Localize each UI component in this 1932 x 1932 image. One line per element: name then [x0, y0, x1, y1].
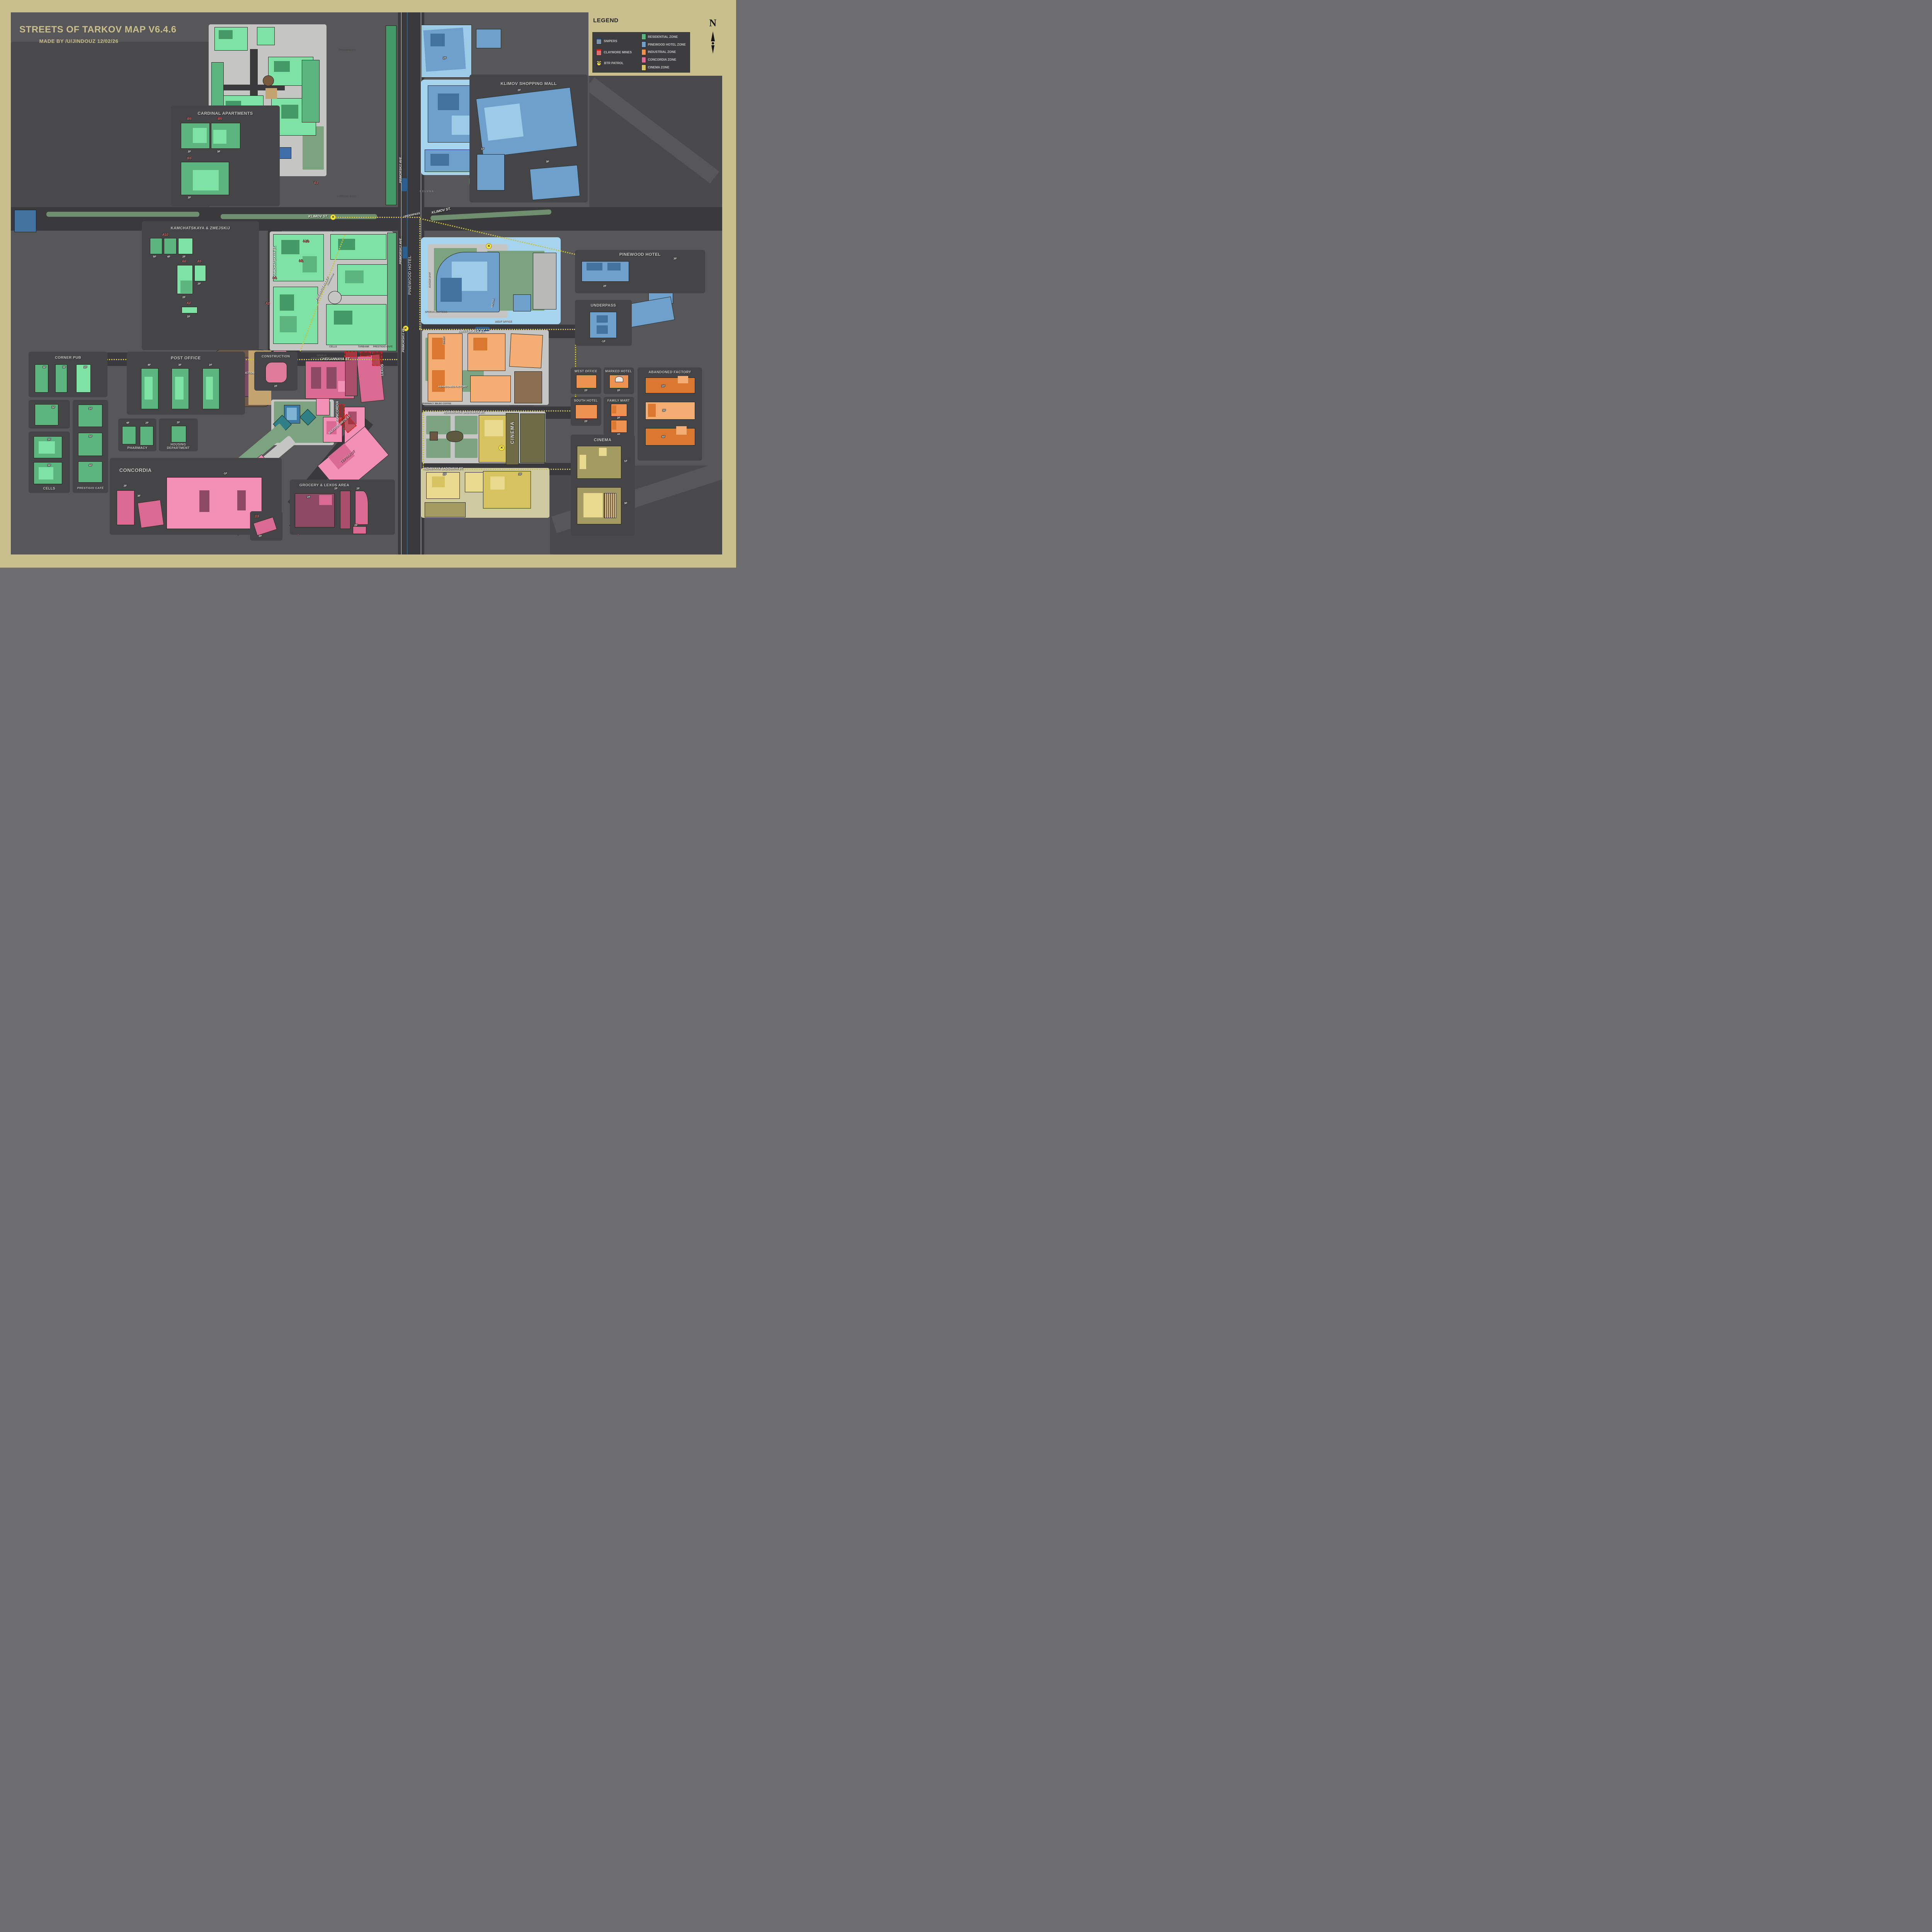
street-label-primorskij49: PRIMORSKIJ 49	[402, 328, 405, 352]
floorplan-detail	[145, 377, 153, 400]
floor-label: 2F	[182, 296, 186, 299]
cinema-zone-swatch	[641, 65, 646, 71]
floorplan-detail	[607, 263, 621, 270]
road-klimov	[11, 207, 722, 231]
code-label: A6	[182, 259, 186, 263]
panel-title: CORNER PUB	[55, 355, 81, 360]
panel-south-hotel: SOUTH HOTEL 2F	[571, 397, 601, 426]
map-building	[509, 333, 543, 368]
floor-label: -1F	[223, 472, 227, 475]
panel-title: SOUTH HOTEL	[574, 399, 598, 402]
floor-label: 4F	[662, 435, 665, 438]
floor-label: 3F	[546, 160, 549, 163]
floor-label: 2F	[356, 487, 360, 490]
map-building	[465, 472, 486, 493]
fountain	[446, 431, 463, 442]
panel-title: POST OFFICE	[171, 356, 201, 361]
floor-label: 2F	[124, 484, 127, 487]
btr-path	[419, 329, 575, 330]
cinema-seats	[604, 493, 616, 518]
floor-label: 2F	[517, 88, 521, 92]
panel-underpass: UNDERPASS -1F	[575, 300, 632, 346]
floorplan	[178, 238, 193, 254]
floor-label: 3F	[63, 366, 66, 369]
poi-bilbo-coffee: BILBO COFFEE	[435, 403, 451, 405]
legend: LEGEND SNIPERS CLAYMORE MINES ✕ BTR PATR…	[588, 12, 722, 76]
poi-pharmacy3: PHARMACY 3	[339, 49, 355, 52]
poi-cardinal-apartments: CARDINAL APARTMENTS	[335, 174, 366, 177]
floorplan	[340, 491, 350, 529]
floor-label: 3F	[137, 494, 141, 497]
concordia-zone-swatch	[641, 57, 646, 63]
floorplan-detail	[597, 315, 608, 323]
floor-label: 2F	[662, 384, 665, 388]
floor-label: 3F	[217, 150, 221, 153]
map-building	[280, 294, 294, 311]
floorplan-detail	[587, 263, 602, 270]
floor-label: 2F	[603, 284, 607, 287]
map-floor-label: 2F	[443, 473, 447, 476]
floorplan-detail	[237, 490, 246, 510]
floor-label: 2F	[617, 416, 621, 420]
residential-zone-swatch	[641, 34, 646, 40]
poi-lexos: LEXOS	[380, 364, 384, 376]
floorplan	[35, 364, 48, 393]
map-building	[432, 370, 445, 392]
floorplan-detail	[39, 467, 53, 480]
floorplan-detail	[612, 421, 616, 430]
map-building	[257, 27, 275, 45]
claymore-icon	[596, 49, 602, 56]
panel-abandoned-factory: ABANDONED FACTORY 2F 3F 4F	[638, 367, 702, 461]
poi-pinewood-hotel: PINEWOOD HOTEL	[408, 256, 412, 295]
floorplan-detail	[319, 495, 332, 505]
floorplan	[575, 405, 597, 419]
map-building	[274, 61, 290, 72]
floor-label: 5F	[153, 255, 156, 258]
map-building	[386, 26, 396, 205]
floorplan	[137, 500, 163, 528]
map-building	[432, 476, 445, 487]
map-building	[514, 371, 542, 403]
floorplan-detail	[612, 405, 616, 414]
street-label-primorskij-1: PRIMORSKIJ AVE.	[399, 156, 402, 183]
code-a6-map: A6	[273, 276, 277, 280]
floorplan	[265, 362, 287, 383]
map-building	[387, 233, 396, 352]
floorplan	[477, 154, 505, 191]
floor-label: 2F	[617, 389, 621, 392]
map-building	[490, 476, 505, 490]
map-building	[280, 316, 297, 332]
floorplan	[353, 526, 366, 534]
floor-label: 3F	[624, 502, 628, 505]
poi-abandoned-factory-map: ABANDONED FACTORY	[438, 386, 467, 388]
panel-cardinal: CARDINAL APARTMENTS B5 B5 B3 2F 3F 2F	[171, 105, 280, 206]
legend-row-snipers: SNIPERS	[596, 38, 617, 44]
industrial-zone-swatch	[641, 49, 646, 55]
panel-title: CARDINAL APARTMENTS	[198, 111, 253, 116]
floor-label: 4F	[126, 421, 129, 424]
floorplan-detail	[648, 404, 656, 417]
map-subtitle: MADE BY /U/JINDOUZ 12/02/26	[39, 38, 119, 44]
floorplan	[645, 428, 695, 446]
poi-prestigio-map: PRESTIGIO CAFÉ	[373, 346, 393, 348]
map-building	[485, 420, 503, 436]
panel-title: CONCORDIA	[119, 468, 152, 473]
map-building	[513, 294, 531, 311]
floor-label: -1F	[601, 339, 605, 343]
poi-sparja-grocery: SPARJA GROCERY STORE	[311, 354, 333, 360]
panel-title: GROCERY & LEXOS AREA	[299, 483, 349, 487]
floor-label: 1F	[624, 459, 628, 463]
panel-corner-pub-5f: 5F	[29, 400, 70, 429]
primorskij-lane-line-left	[401, 12, 401, 554]
legend-label: CLAYMORE MINES	[604, 51, 632, 54]
panel-title: WEST OFFICE	[575, 369, 597, 373]
floor-label: 3F	[662, 408, 666, 412]
poi-beluga: BELUGA	[420, 190, 434, 193]
floor-label: 4F	[148, 363, 151, 367]
legend-row-concordia: CONCORDIA ZONE	[641, 57, 676, 63]
floor-label: 4F	[89, 464, 92, 467]
panel-klimov-mall: KLIMOV SHOPPING MALL 2F 1F 3F	[469, 75, 588, 202]
btr-patrol-icon: ✕	[330, 214, 336, 220]
floorplan	[194, 265, 206, 281]
poi-diner: DINER	[443, 337, 446, 345]
floor-label: 2F	[307, 495, 310, 498]
legend-label: RESIDENTIAL ZONE	[648, 35, 678, 39]
floorplan-detail	[583, 493, 603, 517]
klimov-median-1	[46, 212, 199, 217]
panel-title: CELLS	[43, 486, 56, 490]
floorplan-detail	[678, 376, 688, 383]
code-a2-map: A2	[265, 301, 270, 305]
poi-cells-map: CELLS	[329, 346, 337, 348]
floorplan-detail	[206, 377, 213, 400]
map-building	[470, 376, 511, 402]
floorplan-detail	[199, 490, 210, 512]
map-building	[345, 270, 364, 284]
poi-pharmacy2: PHARMACY 2	[422, 403, 436, 405]
floorplan	[167, 477, 262, 529]
panel-title: KAMCHATSKAYA & ZMEJSKIJ	[171, 226, 230, 230]
floor-label: 3F	[673, 257, 677, 260]
legend-row-cinema: CINEMA ZONE	[641, 65, 670, 71]
floorplan-detail	[597, 325, 608, 333]
snipers-icon	[596, 38, 602, 44]
floor-label: 4F	[43, 366, 46, 369]
map-building	[316, 398, 330, 415]
legend-label: BTR PATROL	[604, 61, 623, 65]
floor-label: 2F	[274, 384, 277, 388]
street-label-klimov: KLIMOV ST.	[308, 214, 328, 218]
floor-label: 2F	[197, 282, 201, 286]
code-a5-map: A5	[299, 259, 303, 263]
pinewood-zone-swatch	[641, 41, 646, 48]
legend-title: LEGEND	[593, 17, 619, 24]
panel-construction: CONSTRUCTION 2F	[254, 352, 298, 391]
street-label-nizhnyaya: NIZHNYAYA SADOVAYA ST.	[423, 467, 463, 471]
floor-label: 2F	[188, 150, 191, 153]
floor-label: 4F	[167, 255, 170, 258]
compass-needle-south-icon	[711, 45, 714, 54]
map-building	[430, 154, 449, 166]
floorplan-detail	[676, 426, 687, 435]
map-building	[302, 60, 320, 122]
map-building	[311, 367, 321, 389]
panel-pharmacy: 4F 2F PHARMACY	[118, 418, 156, 452]
floorplan-detail	[175, 377, 183, 400]
code-b3-map: B3	[314, 181, 318, 185]
floor-label: 2F	[187, 315, 190, 318]
floorplan	[164, 238, 176, 254]
panel-title: MARKED HOTEL	[605, 369, 632, 373]
poi-concordia-map: CONCORDIA	[335, 401, 339, 422]
legend-row-residential: RESIDENTIAL ZONE	[641, 34, 678, 40]
panel-title: PHARMACY	[128, 446, 148, 450]
panel-kamchatskaya: KAMCHATSKAYA & ZMEJSKIJ A10 5F 4F 2F A6 …	[142, 221, 259, 350]
floor-label: 2F	[584, 389, 588, 392]
floor-label: 2F	[48, 438, 51, 441]
code-a10-map: A10	[303, 239, 309, 243]
map-building	[281, 105, 298, 119]
floorplan-detail	[213, 130, 226, 144]
floorplan	[253, 517, 277, 536]
poi-tarbank: TARBANK	[358, 346, 369, 348]
floorplan	[140, 426, 154, 446]
floorplan-detail	[193, 170, 219, 190]
map-floor-label: 2F	[443, 56, 447, 60]
code-label: B5	[218, 117, 222, 121]
floor-label: 3F	[89, 435, 92, 438]
legend-label: INDUSTRIAL ZONE	[648, 50, 676, 54]
street-label-nikitskaya: NIKITSKAYA ST.	[458, 329, 485, 333]
map-building	[476, 29, 501, 48]
claymore-zone	[344, 351, 357, 357]
street-label-kamchatskaya: KAMCHATSKAYA ST.	[273, 246, 277, 277]
panel-grocery-lexos: GROCERY & LEXOS AREA 2F 2F 2F 2F	[290, 480, 395, 535]
floorplan-detail	[580, 455, 586, 469]
cinema-lawn-3	[426, 439, 451, 458]
code-label: A5	[197, 259, 201, 263]
panel-marked-hotel: MARKED HOTEL 2F	[604, 367, 634, 394]
code-label: A10	[162, 233, 168, 236]
street-label-verhnyaya: VERHNYAYA SADOVAYA ST.	[443, 411, 485, 414]
map-building	[473, 338, 488, 351]
panel-prestigio: 2F 3F 4F PRESTIGIO CAFÉ	[73, 400, 108, 493]
map-building	[219, 30, 233, 39]
poi-west-office-map: WEST OFFICE	[495, 320, 512, 323]
floor-label: 2F	[89, 406, 92, 410]
floorplan-detail	[599, 448, 607, 456]
poi-sparja-express: SPARJA EXPRESS	[425, 311, 447, 313]
panel-pinewood: PINEWOOD HOTEL 2F 3F	[575, 250, 705, 293]
floorplan-detail	[39, 441, 55, 454]
floorplan	[122, 426, 136, 444]
btr-path	[419, 219, 420, 329]
floor-label: 3F	[48, 464, 51, 467]
map-building	[430, 34, 445, 47]
legend-row-industrial: INDUSTRIAL ZONE	[641, 49, 676, 55]
panel-housing: 2F HOUSING DEPARTMENT	[159, 418, 198, 452]
poi-cinema-building: CINEMA	[510, 421, 515, 444]
code-label: D3	[255, 514, 259, 518]
floor-label: 2F	[188, 196, 191, 199]
map-building	[533, 253, 556, 310]
floor-label: 2F	[259, 534, 262, 538]
map-canvas: ✕ ✕ ✕ ✕ ✕ KLIMOV ST. KLIMOV ST. UNDERPAS…	[11, 12, 722, 554]
panel-cells: 2F 3F CELLS	[29, 432, 70, 493]
panel-west-office: WEST OFFICE 2F	[571, 367, 601, 394]
panel-title: CONSTRUCTION	[262, 354, 290, 358]
floorplan	[171, 426, 186, 442]
panel-cinema: CINEMA 1F 3F	[571, 435, 635, 536]
map-building	[438, 94, 459, 110]
btr-icon: ✕	[596, 60, 602, 66]
map-building	[334, 311, 352, 325]
legend-row-claymore: CLAYMORE MINES	[596, 49, 632, 56]
panel-corner-pub: CORNER PUB 4F 3F 2F	[29, 352, 107, 397]
street-label-primorskij-2: PRIMORSKIJ AVE.	[399, 237, 402, 264]
floorplan-detail	[193, 128, 207, 143]
panel-d3: D3 2F	[250, 511, 283, 541]
panel-title: FAMILY MART	[607, 399, 630, 402]
panel-title: PRESTIGIO CAFÉ	[77, 486, 104, 490]
panel-title: CINEMA	[594, 438, 612, 442]
poi-cardinal-bank: CARDINAL BANK	[337, 196, 356, 198]
legend-row-btr: ✕ BTR PATROL	[596, 60, 623, 66]
compass-needle-north-icon	[711, 31, 715, 41]
dirt-patch	[265, 88, 277, 99]
panel-title: PINEWOOD HOTEL	[619, 252, 661, 257]
poi-burger-spot: BURGER SPOT	[429, 273, 431, 288]
panel-title: UNDERPASS	[591, 304, 616, 308]
marked-hotel-arch	[615, 376, 623, 382]
floorplan	[576, 375, 597, 388]
floor-label: 2F	[84, 366, 87, 369]
floorplan-detail	[180, 281, 192, 293]
floor-label: 2F	[182, 255, 186, 258]
pool-inner	[287, 408, 297, 420]
floor-label: 2F	[354, 523, 358, 527]
panel-post-office: POST OFFICE 4F 3F 2F	[127, 352, 245, 415]
floorplan	[530, 165, 580, 200]
floor-label: 5F	[52, 406, 55, 409]
panel-title: HOUSING DEPARTMENT	[167, 443, 190, 450]
legend-label: CINEMA ZONE	[648, 66, 670, 69]
map-building	[425, 502, 465, 517]
compass-dot-icon	[712, 42, 714, 44]
code-label: B3	[187, 156, 192, 160]
map-building	[14, 210, 36, 232]
btr-patrol-icon: ✕	[486, 243, 492, 249]
floor-label: 2F	[145, 421, 149, 424]
floorplan	[355, 491, 369, 525]
tram-2	[402, 247, 408, 259]
floorplan	[182, 307, 197, 313]
map-building	[303, 256, 317, 272]
code-label: A2	[187, 301, 191, 305]
panel-family-mart: FAMILY MART 2F 4F	[604, 397, 634, 439]
map-building	[281, 240, 300, 254]
map-building	[423, 28, 466, 72]
legend-row-pinewood: PINEWOOD HOTEL ZONE	[641, 41, 686, 48]
monument	[430, 432, 437, 440]
map-floor-label: 2F	[519, 473, 522, 476]
panel-title: ABANDONED FACTORY	[649, 370, 691, 374]
floor-label: 2F	[209, 363, 213, 367]
floorplan	[117, 490, 135, 525]
map-building	[520, 413, 545, 463]
map-title: STREETS OF TARKOV MAP V6.4.6	[19, 24, 177, 35]
floorplan	[150, 238, 162, 254]
legend-label: SNIPERS	[604, 39, 617, 43]
floor-label: 2F	[584, 419, 588, 423]
btr-path	[423, 410, 424, 469]
floor-label: 2F	[334, 487, 338, 490]
legend-label: PINEWOOD HOTEL ZONE	[648, 43, 686, 46]
code-label: B5	[187, 117, 192, 121]
legend-panel: SNIPERS CLAYMORE MINES ✕ BTR PATROL RESI…	[592, 32, 690, 73]
map-building	[440, 278, 462, 302]
compass-n-label: N	[709, 17, 716, 29]
floor-label: 3F	[178, 363, 182, 367]
poi-corner-restaurant: CORNER RESTAURANT	[509, 405, 534, 407]
floor-label: 2F	[177, 421, 180, 424]
legend-label: CONCORDIA ZONE	[648, 58, 676, 61]
floorplan-detail	[484, 104, 523, 141]
map-building	[327, 367, 337, 389]
map-stage[interactable]: ✕ ✕ ✕ ✕ ✕ KLIMOV ST. KLIMOV ST. UNDERPAS…	[0, 0, 736, 568]
floor-label: 1F	[481, 147, 485, 151]
panel-title: KLIMOV SHOPPING MALL	[500, 82, 557, 86]
compass: N	[706, 17, 719, 73]
claymore-zone	[360, 352, 371, 356]
btr-patrol-icon: ✕	[499, 445, 505, 451]
